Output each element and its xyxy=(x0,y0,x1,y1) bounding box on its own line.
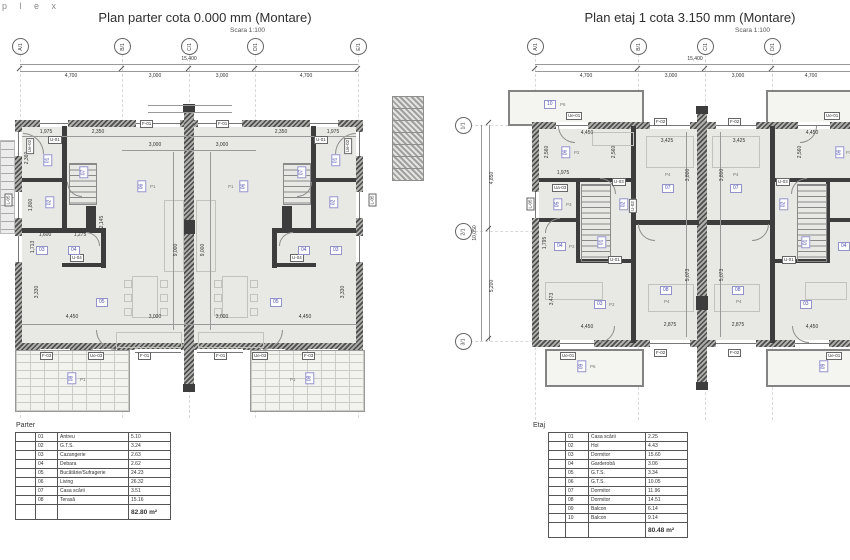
window-tag: L-05 xyxy=(527,197,535,210)
window-slot xyxy=(650,340,690,347)
dim-label: 4,850 xyxy=(489,166,495,190)
balcony xyxy=(508,90,644,126)
window-slot xyxy=(356,192,363,218)
dim-label: 5,073 xyxy=(719,263,725,287)
interior-wall xyxy=(312,178,356,182)
grid-bubble-label: 2/1 xyxy=(460,228,466,235)
room-tag: 07 xyxy=(297,167,306,179)
dim-label: 3,425 xyxy=(727,138,751,144)
room-tag: 08 xyxy=(67,373,76,385)
room-tag: 08 xyxy=(660,286,672,295)
table-row: 05G.T.S.3.34 xyxy=(549,469,688,478)
dim-label: 1,600 xyxy=(33,232,57,238)
table-row: 02G.T.S.3.24 xyxy=(16,442,171,451)
window-slot xyxy=(716,340,756,347)
door-slot xyxy=(356,132,363,156)
p-label: P4 xyxy=(665,172,671,177)
window-tag: F-02 xyxy=(654,349,667,357)
p-label: P2 xyxy=(609,302,615,307)
p-label: P2 xyxy=(574,150,580,155)
dim-label: 2,350 xyxy=(86,129,110,135)
p-label: P1 xyxy=(228,184,234,189)
logo-text: p l e x xyxy=(2,1,61,11)
dim-label: 4,700 xyxy=(574,73,598,79)
door-tag: Ue-03 xyxy=(252,352,268,360)
grid-bubble-label: C/1 xyxy=(703,43,709,51)
exterior-step xyxy=(0,140,15,234)
grid-bubble: B/1 xyxy=(114,38,131,55)
chair xyxy=(214,294,222,302)
window-tag: F-01 xyxy=(214,352,227,360)
dim-line xyxy=(22,136,356,137)
table-row: 08Terasă15.16 xyxy=(16,496,171,505)
stair-treads xyxy=(797,184,827,262)
chair xyxy=(124,294,132,302)
dim-label: 2,560 xyxy=(797,140,803,164)
door-tag: Ua-03 xyxy=(552,184,568,192)
dim-label: 3,000 xyxy=(210,73,234,79)
kitchen-counter xyxy=(196,200,216,272)
party-wall xyxy=(697,106,707,390)
window-tag: L-05 xyxy=(369,193,377,206)
dim-label: 4,450 xyxy=(800,130,824,136)
grid-bubble-label: C/1 xyxy=(187,43,193,51)
dim-label: 1,275 xyxy=(68,232,92,238)
interior-wall xyxy=(101,228,106,268)
dim-label: 2,350 xyxy=(269,129,293,135)
grid-bubble: C/1 xyxy=(697,38,714,55)
wall-pier xyxy=(696,106,708,114)
table-row: 10Balcon9.14 xyxy=(549,514,688,523)
dim-label: 3,800 xyxy=(685,163,691,187)
room-tag: 03 xyxy=(36,246,48,255)
door-tag: Ue-03 xyxy=(88,352,104,360)
grid-bubble: 2/1 xyxy=(455,223,472,240)
grid-bubble: A/1 xyxy=(527,38,544,55)
door-tag: U-01 xyxy=(48,136,62,144)
wall-pier xyxy=(696,382,708,390)
dim-label: 3,800 xyxy=(719,163,725,187)
dim-label: 4,450 xyxy=(293,314,317,320)
room-tag: 04 xyxy=(554,242,566,251)
dim-label: 4,450 xyxy=(575,324,599,330)
balcony xyxy=(766,90,850,126)
window-slot xyxy=(15,236,22,262)
room-tag: 06 xyxy=(137,181,146,193)
door-tag: U-03 xyxy=(776,178,790,186)
interior-wall xyxy=(826,218,850,222)
room-tag: 02 xyxy=(779,199,788,211)
stair-treads xyxy=(581,184,611,262)
window-tag: F-03 xyxy=(40,352,53,360)
p-label: P6 xyxy=(560,102,566,107)
door-tag: Ue-01 xyxy=(560,352,576,360)
chair xyxy=(214,280,222,288)
p-label: P4 xyxy=(733,172,739,177)
sofa xyxy=(198,332,264,348)
table-row: 03Cazangerie2.63 xyxy=(16,451,171,460)
p-label: P1 xyxy=(80,377,86,382)
room-tag: 07 xyxy=(730,184,742,193)
p-label: P3 xyxy=(566,202,572,207)
interior-wall xyxy=(272,228,277,268)
dim-label: 5,200 xyxy=(489,274,495,298)
door-tag: Ue-02 xyxy=(344,138,352,154)
table-row: 07Dormitor11.96 xyxy=(549,487,688,496)
interior-wall xyxy=(576,182,580,262)
etaj-scale: Scara 1:100 xyxy=(735,27,770,34)
p-label: P6 xyxy=(590,364,596,369)
room-tag: 07 xyxy=(662,184,674,193)
dining-table xyxy=(132,276,158,318)
window-tag: F-03 xyxy=(302,352,315,360)
table-row: 02Hol4.43 xyxy=(549,442,688,451)
room-tag: 03 xyxy=(330,246,342,255)
dim-label-total: 15,400 xyxy=(177,56,201,62)
dim-line xyxy=(481,125,482,341)
grid-bubble: E/1 xyxy=(350,38,367,55)
dim-line xyxy=(20,64,358,65)
dim-label: 3,000 xyxy=(143,314,167,320)
room-tag: 03 xyxy=(594,300,606,309)
chair xyxy=(250,280,258,288)
dim-line xyxy=(535,64,850,65)
grid-bubble-label: A/1 xyxy=(532,43,538,51)
table-row: 04Debara2.62 xyxy=(16,460,171,469)
room-tag: 10 xyxy=(544,100,556,109)
door-tag: Ue-01 xyxy=(566,112,582,120)
dim-label: 3,000 xyxy=(726,73,750,79)
dim-label: 1,975 xyxy=(321,129,345,135)
interior-wall xyxy=(62,263,106,267)
grid-bubble: 1/1 xyxy=(455,117,472,134)
dining-table xyxy=(222,276,248,318)
door-tag: Ue-01 xyxy=(826,352,842,360)
door-slot xyxy=(560,340,594,347)
room-tag: 09 xyxy=(819,361,828,373)
dim-label: 4,700 xyxy=(799,73,823,79)
dim-label: 3,000 xyxy=(210,142,234,148)
dim-line xyxy=(20,71,358,72)
room-tag: 06 xyxy=(561,147,570,159)
window-tag: F-01 xyxy=(216,120,229,128)
table-row: 04Garderobă3.06 xyxy=(549,460,688,469)
room-tag: 01 xyxy=(331,155,340,167)
chair xyxy=(250,294,258,302)
dim-line xyxy=(122,150,256,151)
room-tag: 04 xyxy=(298,246,310,255)
room-tag: 07 xyxy=(79,167,88,179)
room-tag: 06 xyxy=(239,181,248,193)
room-tag: 03 xyxy=(800,300,812,309)
window-tag: F-01 xyxy=(140,120,153,128)
grid-bubble-label: D/1 xyxy=(253,43,259,51)
parter-scale: Scara 1:100 xyxy=(230,27,265,34)
dim-label: 3,330 xyxy=(340,280,346,304)
dim-line xyxy=(489,125,490,341)
table-row: 06G.T.S.10.05 xyxy=(549,478,688,487)
grid-bubble: D/1 xyxy=(764,38,781,55)
dim-line xyxy=(210,152,211,330)
wall-pier xyxy=(183,384,195,392)
wall-pier xyxy=(183,220,195,234)
dim-label: 1,975 xyxy=(34,129,58,135)
room-tag: 02 xyxy=(45,197,54,209)
dim-label: 3,425 xyxy=(655,138,679,144)
grid-bubble-label: E/1 xyxy=(355,43,361,51)
grid-bubble-label: B/1 xyxy=(635,43,641,51)
interior-wall xyxy=(62,126,67,232)
table-title-parter: Parter xyxy=(16,422,35,429)
wall-pier xyxy=(86,206,96,230)
dim-label: 1,795 xyxy=(542,231,548,255)
dim-line xyxy=(22,324,356,325)
dim-label: 4,450 xyxy=(575,130,599,136)
chair xyxy=(160,294,168,302)
dim-label: 2,560 xyxy=(544,140,550,164)
window-tag: F-02 xyxy=(728,349,741,357)
dim-label: 2,875 xyxy=(726,322,750,328)
grid-bubble-label: D/1 xyxy=(770,43,776,51)
parter-total-area: 82.80 m² xyxy=(129,505,171,520)
p-label: P4 xyxy=(736,299,742,304)
canopy-line xyxy=(148,112,232,113)
p-label: P3 xyxy=(569,244,575,249)
parter-room-table: 01Antreu5.10 02G.T.S.3.24 03Cazangerie2.… xyxy=(15,432,171,520)
room-tag: 05 xyxy=(96,298,108,307)
table-row: 07Casa scării3.51 xyxy=(16,487,171,496)
room-tag: 05 xyxy=(270,298,282,307)
grid-bubble-label: B/1 xyxy=(119,43,125,51)
table-row: 01Casa scării2.25 xyxy=(549,433,688,442)
door-tag: U-01 xyxy=(314,136,328,144)
door-tag: U-01 xyxy=(608,256,622,264)
door-tag: Ue-02 xyxy=(26,138,34,154)
etaj-title: Plan etaj 1 cota 3.150 mm (Montare) xyxy=(555,10,825,25)
door-tag: Ue-01 xyxy=(824,112,840,120)
grid-bubble: A/1 xyxy=(12,38,29,55)
dim-label: 4,450 xyxy=(60,314,84,320)
room-tag: 02 xyxy=(619,199,628,211)
room-tag: 04 xyxy=(68,246,80,255)
dim-label: 4,450 xyxy=(800,324,824,330)
dim-label: 4,700 xyxy=(294,73,318,79)
interior-wall xyxy=(770,126,775,343)
grid-bubble-label: 1/1 xyxy=(460,122,466,129)
table-row: 05Bucătărie/Sufragerie24.23 xyxy=(16,469,171,478)
window-tag: F-02 xyxy=(654,118,667,126)
room-tag: 05 xyxy=(553,199,562,211)
p-label: P1 xyxy=(150,184,156,189)
dim-label: 10,050 xyxy=(472,221,478,245)
chair xyxy=(124,308,132,316)
grid-bubble-label: A/1 xyxy=(17,43,23,51)
sofa xyxy=(116,332,182,348)
dim-label: 1,800 xyxy=(28,193,34,217)
dim-label: 5,073 xyxy=(685,263,691,287)
table-row: 03Dormitor15.60 xyxy=(549,451,688,460)
room-tag: 08 xyxy=(305,373,314,385)
dim-label: 2,560 xyxy=(611,140,617,164)
table-total-row: 80.48 m² xyxy=(549,523,688,538)
dim-label: 3,000 xyxy=(210,314,234,320)
wall-pier xyxy=(696,296,708,310)
table-row: 01Antreu5.10 xyxy=(16,433,171,442)
grid-bubble: D/1 xyxy=(247,38,264,55)
door-tag: U-04 xyxy=(290,254,304,262)
dim-label: 3,330 xyxy=(34,280,40,304)
door-tag: U-02 xyxy=(629,199,637,213)
interior-wall xyxy=(631,126,636,343)
dim-label: 3,473 xyxy=(549,287,555,311)
dim-label: 3,000 xyxy=(143,73,167,79)
chair xyxy=(160,280,168,288)
dim-label: 9,000 xyxy=(173,238,179,262)
dim-label: 1,975 xyxy=(551,170,575,176)
interior-wall xyxy=(272,263,316,267)
dim-label: 9,000 xyxy=(200,238,206,262)
dim-label: 3,000 xyxy=(659,73,683,79)
grid-bubble-label: 3/1 xyxy=(460,338,466,345)
room-tag: 02 xyxy=(329,197,338,209)
interior-wall xyxy=(22,178,66,182)
door-tag: U-03 xyxy=(612,178,626,186)
grid-bubble: 3/1 xyxy=(455,333,472,350)
exterior-step xyxy=(392,168,424,181)
room-tag: 01 xyxy=(43,155,52,167)
wall-pier xyxy=(282,206,292,230)
table-row: 06Living26.32 xyxy=(16,478,171,487)
room-tag: 01 xyxy=(597,237,606,249)
table-title-etaj: Etaj xyxy=(533,422,545,429)
room-tag: 09 xyxy=(577,361,586,373)
grid-bubble: C/1 xyxy=(181,38,198,55)
p-label: P4 xyxy=(664,299,670,304)
etaj-room-table: 01Casa scării2.25 02Hol4.43 03Dormitor15… xyxy=(548,432,688,538)
drawing-sheet: p l e x Plan parter cota 0.000 mm (Monta… xyxy=(0,0,850,560)
grid-bubble: B/1 xyxy=(630,38,647,55)
dim-label: 2,145 xyxy=(99,210,105,234)
room-tag: 08 xyxy=(732,286,744,295)
room-tag: 01 xyxy=(801,237,810,249)
dim-label: 4,700 xyxy=(59,73,83,79)
dim-label: 3,000 xyxy=(143,142,167,148)
room-tag: 04 xyxy=(838,242,850,251)
p-label: P2 xyxy=(846,150,850,155)
dim-line xyxy=(535,71,850,72)
door-slot xyxy=(15,132,22,156)
door-tag: U-04 xyxy=(70,254,84,262)
etaj-total-area: 80.48 m² xyxy=(646,523,688,538)
table-row: 08Dormitor14.51 xyxy=(549,496,688,505)
window-tag: L-05 xyxy=(5,193,13,206)
chair xyxy=(250,308,258,316)
window-slot xyxy=(15,192,22,218)
window-tag: F-02 xyxy=(728,118,741,126)
p-label: P1 xyxy=(290,377,296,382)
canopy-line xyxy=(148,105,232,106)
dim-label: 2,875 xyxy=(658,322,682,328)
parter-title: Plan parter cota 0.000 mm (Montare) xyxy=(70,10,340,25)
window-slot xyxy=(356,236,363,262)
dim-label-total: 15,400 xyxy=(683,56,707,62)
window-tag: F-01 xyxy=(138,352,151,360)
chair xyxy=(124,280,132,288)
table-row: 09Balcon6.14 xyxy=(549,505,688,514)
bed xyxy=(805,282,847,300)
party-wall xyxy=(184,104,194,392)
door-tag: U-01 xyxy=(782,256,796,264)
room-tag: 06 xyxy=(835,147,844,159)
table-total-row: 82.80 m² xyxy=(16,505,171,520)
